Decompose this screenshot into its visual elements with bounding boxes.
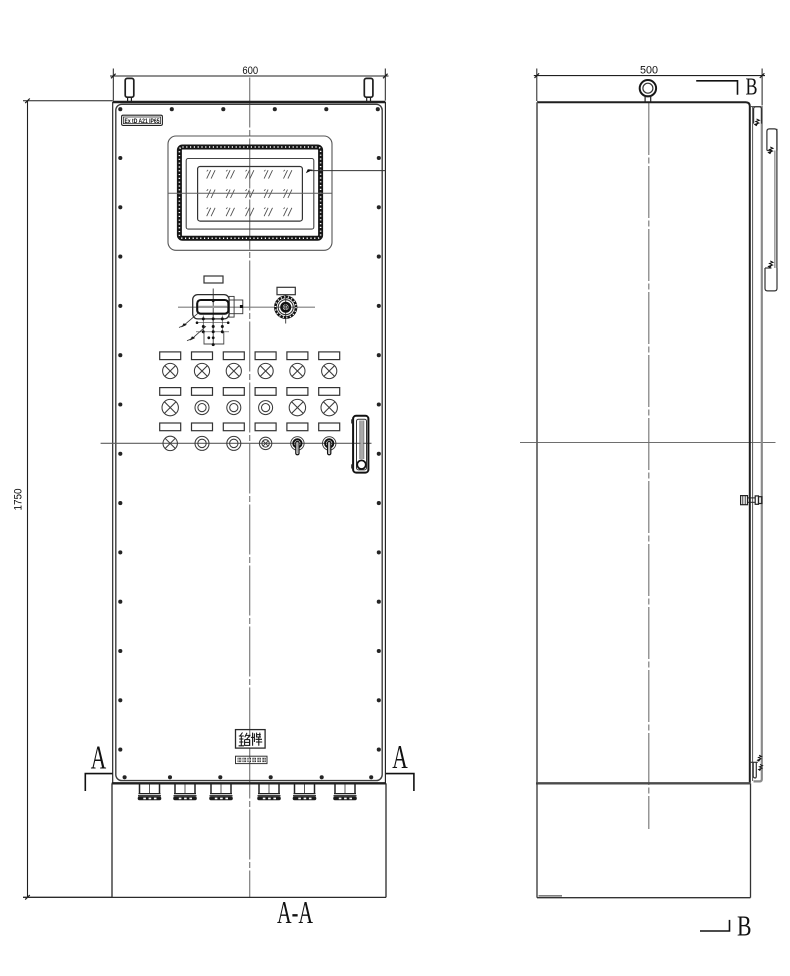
svg-text:A-A: A-A (277, 894, 313, 930)
svg-text:B: B (746, 75, 758, 101)
svg-text:B: B (737, 911, 752, 943)
svg-text:600: 600 (242, 65, 258, 77)
svg-text:A: A (392, 739, 408, 776)
svg-text:A: A (91, 740, 107, 777)
svg-text:1750: 1750 (13, 489, 25, 511)
svg-text:Ex tD A21 IP65: Ex tD A21 IP65 (125, 118, 160, 125)
svg-text:500: 500 (640, 65, 658, 77)
